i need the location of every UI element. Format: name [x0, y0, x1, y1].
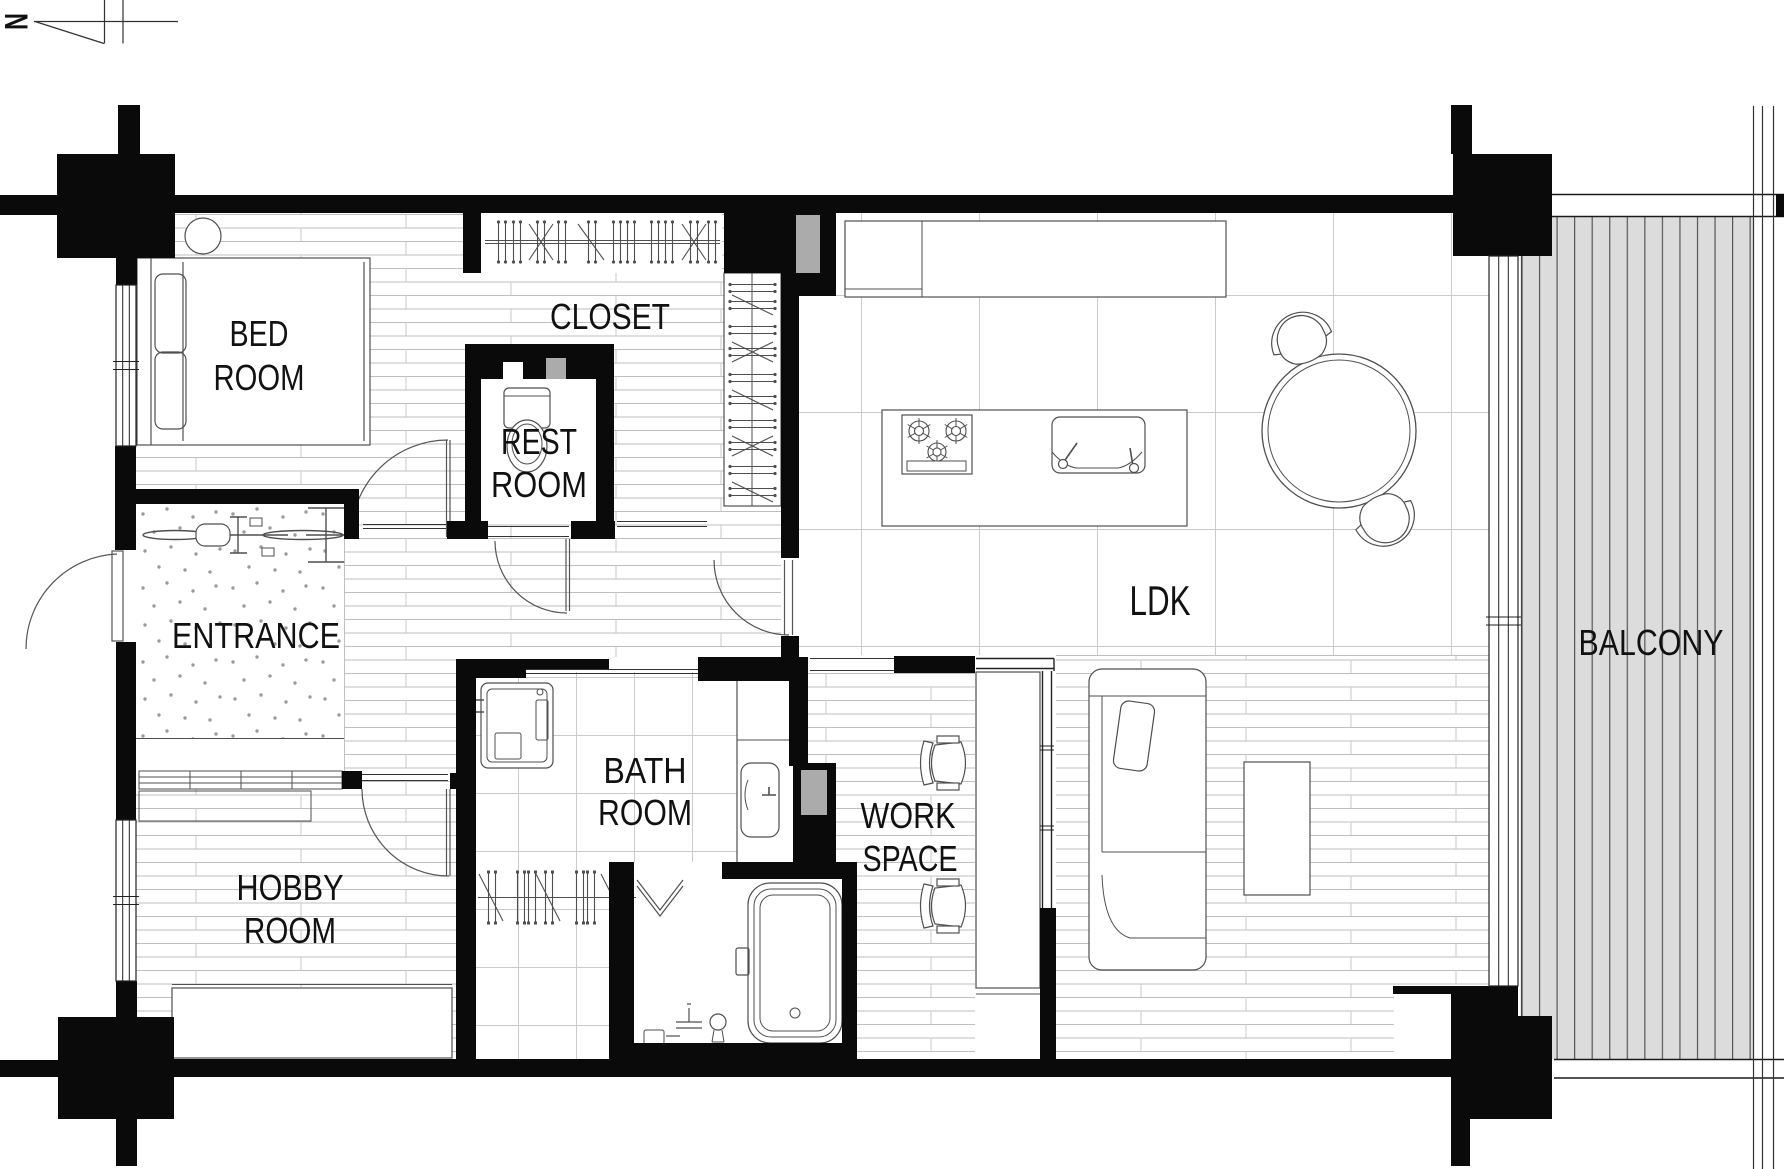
svg-text:ROOM: ROOM: [598, 792, 692, 833]
svg-text:N: N: [0, 13, 34, 30]
svg-text:ROOM: ROOM: [244, 910, 336, 951]
svg-text:ROOM: ROOM: [214, 357, 305, 398]
svg-text:BATH: BATH: [604, 750, 687, 791]
svg-text:WORK: WORK: [861, 795, 956, 836]
svg-text:ENTRANCE: ENTRANCE: [172, 615, 340, 656]
svg-text:BED: BED: [230, 313, 289, 354]
svg-text:HOBBY: HOBBY: [237, 867, 344, 908]
svg-text:CLOSET: CLOSET: [550, 296, 670, 337]
svg-text:LDK: LDK: [1130, 577, 1191, 624]
svg-text:BALCONY: BALCONY: [1579, 622, 1724, 663]
svg-text:SPACE: SPACE: [863, 838, 958, 879]
svg-text:REST: REST: [501, 421, 577, 462]
svg-text:ROOM: ROOM: [491, 464, 587, 505]
